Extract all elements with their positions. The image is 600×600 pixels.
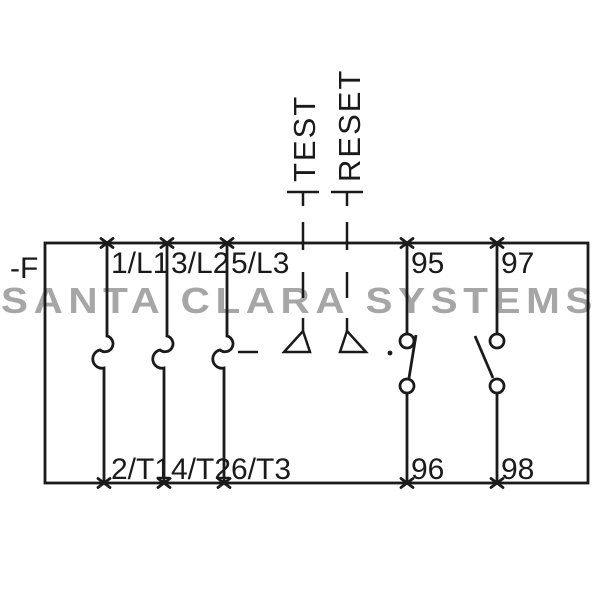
test-label: TEST [287,95,322,182]
contact-fixed-terminal [400,379,414,393]
watermark-text: SANTA CLARA SYSTEMS [1,280,598,321]
pole-l1-conductor [93,243,113,483]
terminal-label-6T3: 6/T3 [231,453,291,486]
linkage-dot [388,351,393,356]
contact-fixed-terminal [490,334,504,348]
terminal-label-95: 95 [411,247,444,280]
terminal-label-1L1: 1/L1 [111,247,169,280]
no-contact-97-98: 97 98 [475,239,534,488]
test-pushbutton-icon [287,192,319,206]
terminal-label-5L3: 5/L3 [231,247,289,280]
main-pole-l1: 1/L1 2/T1 [93,239,171,488]
contact-fixed-terminal [490,379,504,393]
test-arrow-icon [284,331,310,352]
reset-label: RESET [332,69,367,182]
device-designator: -F [10,252,38,285]
reset-pushbutton-icon [331,192,363,206]
contact-fixed-terminal [400,334,414,348]
reset-arrow-icon [340,331,366,352]
terminal-label-97: 97 [501,247,534,280]
terminal-label-96: 96 [411,453,444,486]
nc-trip-contact-95-96: 95 96 [400,239,444,488]
terminal-label-98: 98 [501,453,534,486]
trip-linkage [238,351,392,356]
overload-relay-schematic: SANTA CLARA SYSTEMS -F 1/L1 2/T1 3/L2 4/… [0,0,600,600]
terminal-label-3L2: 3/L2 [171,247,229,280]
